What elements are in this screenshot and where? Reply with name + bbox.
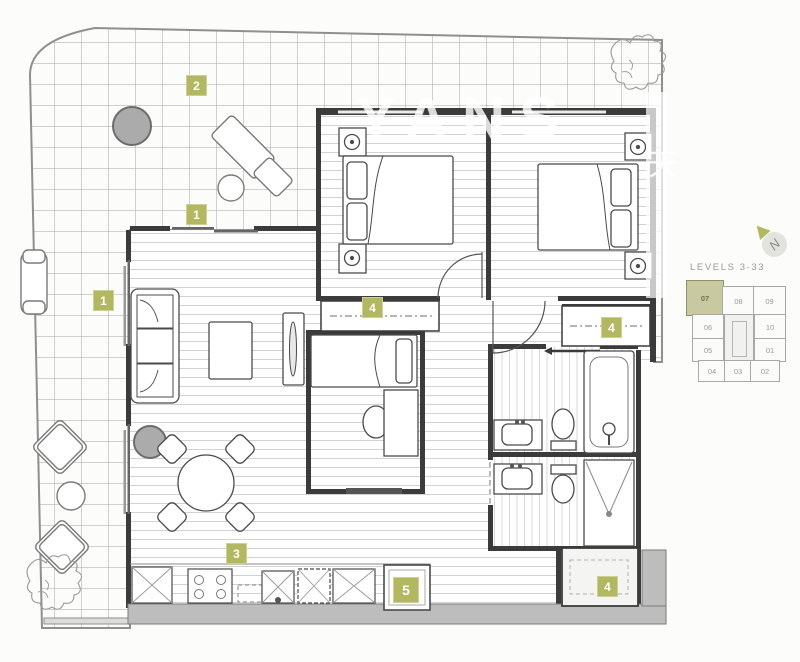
key-plan-unit-10: 10	[754, 314, 786, 340]
pillow	[347, 203, 367, 240]
key-plan-unit-02: 02	[750, 360, 780, 382]
marker-badge: 2	[186, 75, 207, 96]
tub-faucet	[603, 423, 615, 435]
key-plan-unit-07: 07	[686, 280, 724, 316]
key-plan-unit-04: 04	[698, 360, 726, 382]
cooktop	[188, 569, 232, 603]
key-plan-grid: 07 08 09 06 10 05 01 04 03 02	[684, 278, 790, 384]
sliding-door	[346, 488, 402, 494]
key-plan-unit-03: 03	[724, 360, 752, 382]
north-arrow: N	[748, 224, 794, 262]
terrace-parapet	[44, 618, 130, 624]
toilet-tank	[551, 465, 576, 474]
pillow	[347, 162, 367, 199]
sliding-door	[172, 227, 214, 230]
sink-basin	[502, 468, 532, 489]
sliding-door	[128, 424, 131, 514]
window	[338, 111, 422, 114]
sofa-cushion	[137, 329, 173, 363]
pillow	[611, 210, 631, 247]
sink-basin	[502, 424, 532, 445]
toilet	[552, 409, 574, 439]
sliding-door	[124, 266, 127, 346]
marker-badge: 3	[226, 543, 247, 564]
key-plan-unit-01: 01	[754, 338, 786, 362]
wall-column	[642, 550, 666, 606]
pillow	[396, 339, 412, 383]
key-plan-unit-08: 08	[722, 286, 755, 316]
marker-badge: 1	[93, 290, 114, 311]
bench-cap	[23, 250, 45, 263]
key-plan-core	[724, 314, 754, 362]
toilet	[552, 475, 574, 503]
marker-badge: 4	[597, 576, 618, 597]
key-plan-unit-05: 05	[692, 338, 724, 362]
outdoor-table	[57, 482, 85, 510]
window	[512, 111, 606, 114]
faucet	[515, 420, 519, 424]
sliding-door	[124, 430, 127, 514]
faucet	[510, 464, 514, 468]
side-table	[218, 175, 244, 201]
sliding-door	[214, 230, 258, 233]
coffee-table	[209, 322, 252, 379]
tv	[290, 322, 297, 376]
floorplan-image: 2 1 1 3 4 4 4 5 N LEVELS 3-33 07 08 09 0…	[0, 0, 800, 662]
building-key-plan: N LEVELS 3-33 07 08 09 06 10 05 01 04 03…	[676, 222, 796, 392]
pillow	[611, 169, 631, 206]
kitchen-faucet	[275, 597, 281, 603]
marker-badge: 4	[601, 317, 622, 338]
sliding-door	[128, 260, 131, 346]
key-plan-unit-09: 09	[753, 286, 786, 316]
sofa-cushion	[137, 364, 173, 397]
levels-label: LEVELS 3-33	[690, 262, 765, 273]
marker-badge: 4	[362, 297, 383, 318]
sofa-cushion	[137, 295, 173, 328]
shower	[584, 460, 634, 546]
marker-badge: 1	[186, 204, 207, 225]
marker-badge: 5	[393, 577, 419, 603]
shower-drain	[606, 511, 612, 517]
key-plan-unit-06: 06	[692, 314, 724, 340]
toilet-tank	[551, 441, 576, 450]
bench-cap	[23, 301, 45, 314]
desk	[384, 390, 418, 456]
round-table	[113, 107, 151, 145]
dining-table	[178, 455, 234, 511]
